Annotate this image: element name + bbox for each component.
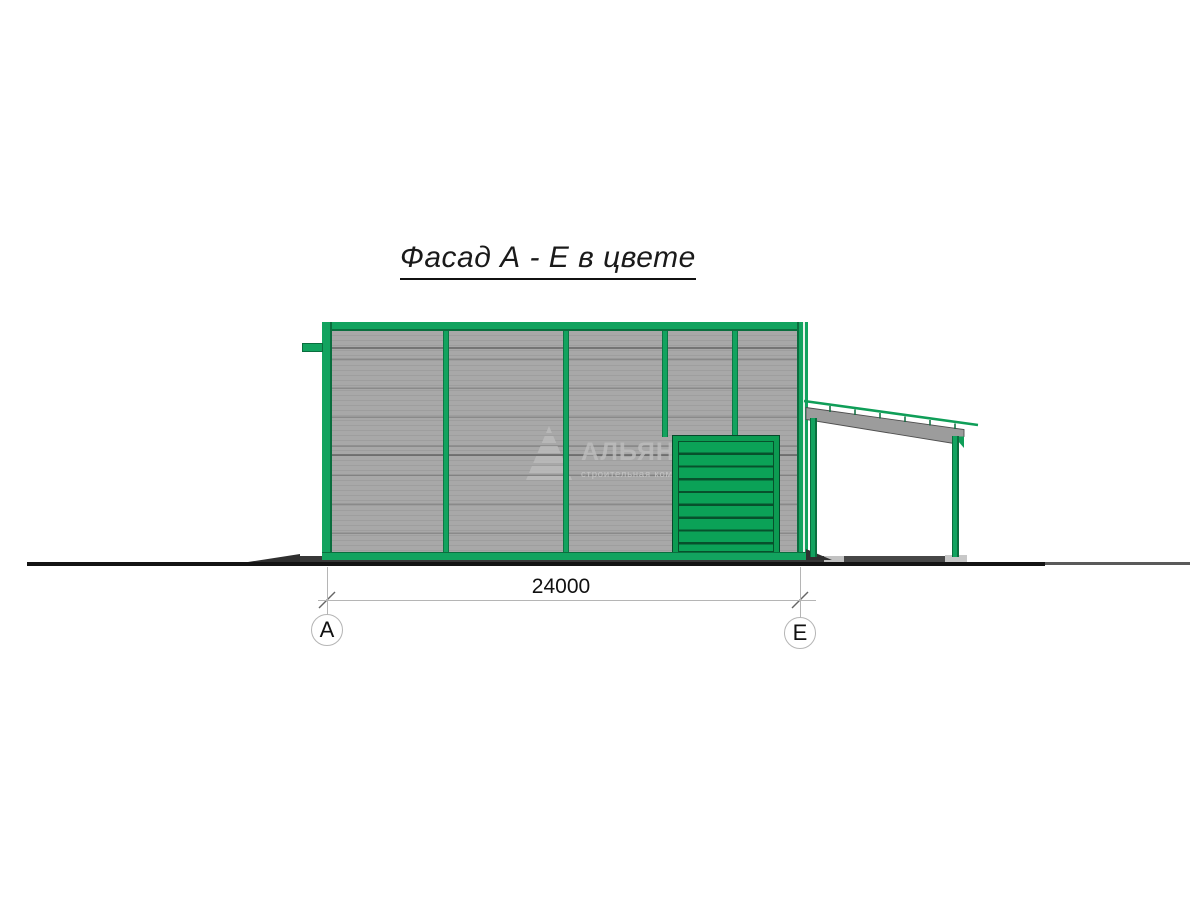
axis-label-a: А [320,617,335,643]
facade-mullion [563,331,569,552]
dimension-line [318,600,816,601]
roof-edge-beam [322,322,808,331]
corner-column-right [797,322,808,555]
axis-marker-a: А [311,614,343,646]
ground-line-extension [1045,562,1190,565]
corner-column-left [322,322,332,555]
soil-wedge-left [248,554,300,562]
facade-drawing-canvas: Фасад А - Е в цвете АЛЬЯНС строительная … [0,0,1200,900]
canopy-beam [806,408,964,444]
ground-line [27,562,1045,566]
base-trim [322,552,808,560]
gate-slats [678,441,774,552]
sectional-gate [672,435,780,557]
canopy-post-right [952,436,959,557]
extension-line-a [327,567,328,615]
gutter-outlet [302,343,323,352]
dimension-value: 24000 [516,575,606,599]
facade-mullion-short [662,331,668,437]
facade-mullion-short [732,331,738,437]
canopy-roof-line [804,401,978,425]
axis-label-e: Е [793,620,808,646]
facade-mullion [443,331,449,552]
drawing-title: Фасад А - Е в цвете [400,241,696,280]
extension-line-e [800,567,801,618]
axis-marker-e: Е [784,617,816,649]
canopy-post-left [810,418,817,557]
